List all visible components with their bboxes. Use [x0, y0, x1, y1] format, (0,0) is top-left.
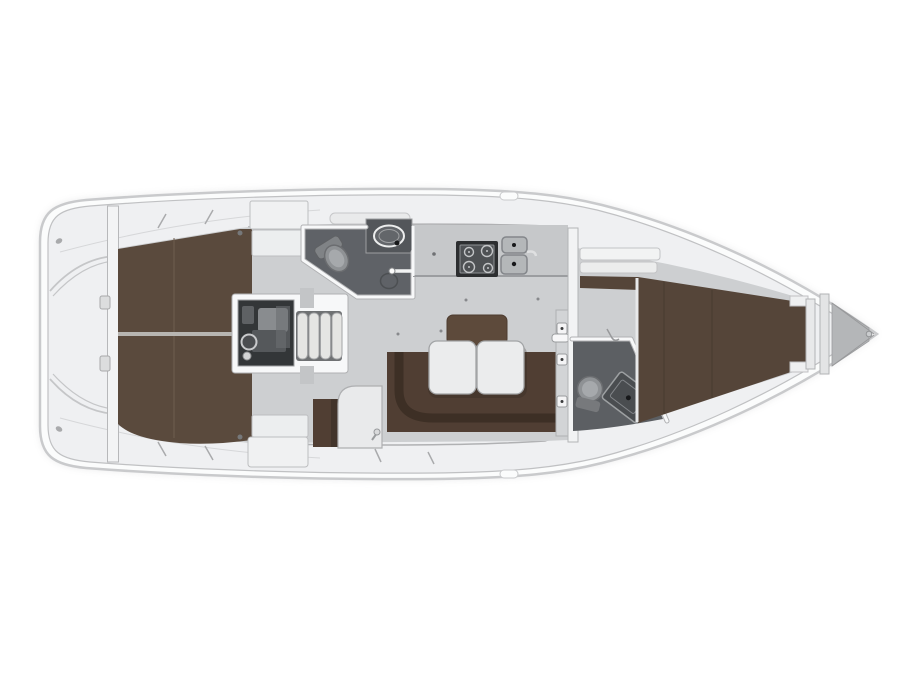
vberth-head-strip	[580, 276, 638, 290]
engine-part	[242, 306, 254, 324]
table-leaf-right	[477, 341, 524, 394]
chart-lamp	[374, 429, 380, 435]
companionway-block: Engine compartment Companionway steps	[232, 288, 348, 384]
table-leaf-left	[429, 341, 476, 394]
bow-bulkhead-2	[820, 294, 829, 374]
engine-manifold	[276, 306, 290, 348]
locker-bottom-inner	[252, 415, 308, 437]
yacht-floorplan-figure: Sailing yacht hull (top view, bow to the…	[0, 0, 900, 675]
cleat-bottom	[500, 470, 518, 478]
locker-top-outer	[250, 201, 308, 229]
sink-drain-bottom	[512, 262, 516, 266]
hinge-dot-3	[561, 400, 564, 403]
fwd-shelf-inner	[580, 262, 657, 273]
step-1	[298, 313, 308, 359]
locker-top-inner	[252, 230, 308, 256]
chart-table: Chart table	[338, 386, 382, 448]
cleat-top	[500, 192, 518, 200]
aft-head-door-handle	[389, 268, 395, 274]
basin-faucet	[395, 241, 400, 246]
steps-trim-top	[300, 288, 314, 308]
bulkhead-clip-top	[100, 296, 110, 309]
berth-fitting-bottom	[238, 435, 243, 440]
bow-fitting: Bow tip	[866, 331, 872, 337]
galley-latch	[432, 252, 436, 256]
sink-drain-top	[512, 243, 516, 247]
aft-bulkhead	[108, 206, 119, 462]
stove	[456, 241, 498, 277]
step-3	[321, 313, 331, 359]
fwd-shelf-outer	[580, 248, 660, 260]
door-latch	[552, 334, 569, 342]
steps-trim-bottom	[300, 366, 314, 384]
step-4	[332, 313, 342, 359]
locker-bottom-outer	[248, 437, 308, 467]
toilet-fwd-seat	[582, 381, 598, 397]
engine-filter	[242, 335, 257, 350]
bow-bulkhead-1	[806, 299, 815, 369]
hinge-dot-2	[561, 358, 564, 361]
floorplan-svg: Sailing yacht hull (top view, bow to the…	[0, 0, 900, 675]
berth-fitting-top	[238, 231, 243, 236]
nav-seat-edge	[331, 399, 338, 447]
anchor-locker	[832, 303, 869, 366]
step-2	[309, 313, 319, 359]
foot-shelf-top	[790, 296, 808, 306]
bulkhead-clip-bottom	[100, 356, 110, 371]
engine-cap	[243, 352, 251, 360]
foot-shelf-bottom	[790, 362, 808, 372]
companionway-steps: Companionway steps	[296, 311, 342, 361]
engine-compartment: Engine compartment	[238, 300, 294, 366]
galley: Galley with stove and twin sinks	[413, 225, 568, 277]
hinge-dot-1	[561, 327, 564, 330]
